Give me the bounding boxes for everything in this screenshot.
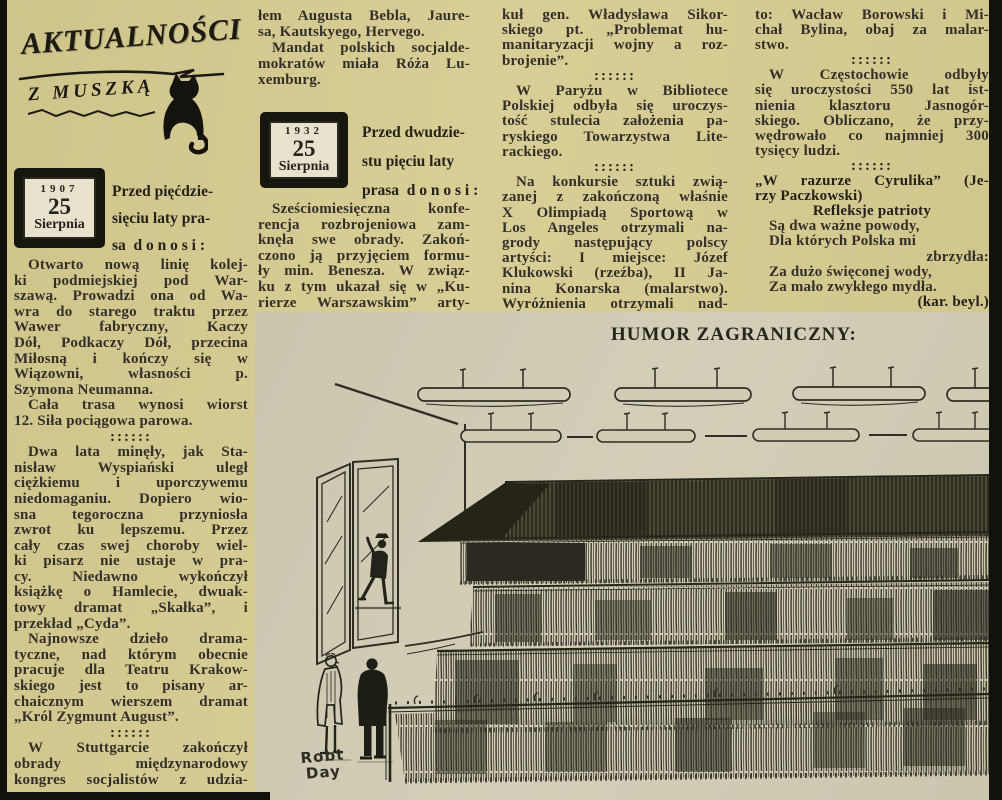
- text-line: mokratów miała Róża Lu-: [258, 56, 470, 72]
- text-line: manitaryzacji wojny a roz-: [502, 38, 728, 53]
- text-line: Miłosną i kończy się w: [14, 352, 248, 368]
- text-line: Otwarto nową linię kolej-: [14, 258, 248, 274]
- ceiling-lamp: [615, 368, 751, 406]
- signature-line: Day: [305, 762, 341, 783]
- man-dark-coat: [358, 658, 388, 758]
- text-line: Sześciomiesięczna konfe-: [258, 202, 470, 218]
- masthead-title: AKTUALNOŚCI: [20, 13, 243, 62]
- text-line: rierze Warszawskim” arty-: [258, 296, 470, 312]
- text-line: knęła swe obrady. Zakoń-: [258, 233, 470, 249]
- text-line: rzy Paczkowski): [755, 189, 989, 204]
- text-line: zwrot ku lepszemu. Przez: [14, 523, 248, 539]
- text-line: niedomaganiu. Dopiero wio-: [14, 492, 248, 508]
- ceiling-lamp: [947, 368, 989, 401]
- text-line: ryskiego Towarzystwa Lite-: [502, 130, 728, 145]
- text-line: Refleksje patrioty: [755, 204, 989, 219]
- cat-icon: [156, 70, 208, 162]
- text-line: chał Bylina, obaj za malar-: [755, 23, 989, 38]
- text-line: pracuje dla Teatru Krakow-: [14, 663, 248, 679]
- intro-1932: Przed dwudzie-stu pięciu latyprasa d o n…: [362, 118, 474, 205]
- text-line: przekład „Cyda”.: [14, 617, 248, 633]
- text-line: ły min. Benesza. W związ-: [258, 264, 470, 280]
- text-line: xemburg.: [258, 72, 470, 88]
- ceiling-lamp: [418, 369, 570, 406]
- text-line: Mandat polskich socjalde-: [258, 40, 470, 56]
- section-separator: ::::::: [755, 159, 989, 174]
- text-line: Wiązowni, własności p.: [14, 367, 248, 383]
- artist-signature: Robt Day: [300, 745, 347, 783]
- cartoon-area: HUMOR ZAGRANICZNY:: [255, 312, 989, 800]
- text-line: Najnowsze dzieło drama-: [14, 632, 248, 648]
- text-line: „W razurze Cyrulika” (Je-: [755, 174, 989, 189]
- text-line: Są dwa ważne powody,: [755, 219, 989, 234]
- intro-1907: Przed pięćdzie-sięciu laty pra-sa d o n …: [112, 178, 250, 259]
- text-line: Przed dwudzie-: [362, 118, 474, 147]
- text-line: Wawer fabryczny, Kaczy: [14, 320, 248, 336]
- text-line: to: Wacław Borowski i Mi-: [755, 8, 989, 23]
- text-line: „Król Zygmunt August”.: [14, 710, 248, 726]
- text-line: nienia klasztoru Jasnogór-: [755, 99, 989, 114]
- text-line: Szymona Neumanna.: [14, 383, 248, 399]
- badge-month: Sierpnia: [34, 217, 85, 233]
- ceiling-lamp: [597, 413, 695, 442]
- text-line: się uroczystości 550 lat ist-: [755, 83, 989, 98]
- text-line: Los Angeles otrzymali na-: [502, 221, 728, 236]
- text-line: stwo.: [755, 38, 989, 53]
- text-line: szawą. Prowadzi ona od Wa-: [14, 289, 248, 305]
- masthead: AKTUALNOŚCI Z MUSZKĄ: [14, 16, 252, 166]
- coat-rack-tier: [469, 580, 989, 646]
- text-line: ki podmiejskiej pod War-: [14, 274, 248, 290]
- text-line: W Częstochowie odbyły: [755, 68, 989, 83]
- date-badge-inner: 1907 25 Sierpnia: [23, 177, 96, 239]
- text-line: sa d o n o s i :: [112, 232, 250, 259]
- column-2-top: łem Augusta Bebla, Jaure-sa, Kautskyego,…: [258, 8, 470, 88]
- text-line: zanej z zakończoną właśnie: [502, 190, 728, 205]
- section-separator: ::::::: [14, 726, 248, 742]
- section-separator: ::::::: [755, 53, 989, 68]
- scan-edge-right: [989, 0, 1002, 800]
- text-line: skiego. Obliczano, że przy-: [755, 114, 989, 129]
- text-line: W Paryżu w Bibliotece: [502, 84, 728, 99]
- text-line: rackiego.: [502, 145, 728, 160]
- text-line: rencja rozbrojeniowa zam-: [258, 218, 470, 234]
- masthead-zigzag: [26, 108, 158, 118]
- text-line: towy dramat „Skałka”, i: [14, 601, 248, 617]
- coat-racks: [386, 475, 989, 782]
- ceiling-lamp: [753, 412, 859, 441]
- man-pinstripe: [317, 654, 343, 753]
- text-line: Dla których Polska mi: [755, 234, 989, 249]
- text-line: Polskiej odbyła się uroczys-: [502, 99, 728, 114]
- text-line: nisław Wyspiański uległ: [14, 461, 248, 477]
- text-line: tość stulecia założenia pa-: [502, 114, 728, 129]
- talking-men: [317, 654, 393, 762]
- ceiling-lamp: [793, 367, 925, 405]
- text-line: tysięcy ludzi.: [755, 144, 989, 159]
- text-line: nina Konarska (malarstwo).: [502, 282, 728, 297]
- text-line: chaicznym wierszem dramat: [14, 695, 248, 711]
- scan-edge-left: [0, 0, 7, 800]
- text-line: kuł gen. Władysława Sikor-: [502, 8, 728, 23]
- text-line: Za mało zwykłego mydła.: [755, 280, 989, 295]
- text-line: (kar. beyl.): [755, 295, 989, 310]
- text-line: Dół, Podkaczy Dół, przecina: [14, 336, 248, 352]
- ceiling-lamp: [461, 413, 561, 442]
- text-line: czono ją przyjęciem formu-: [258, 249, 470, 265]
- date-badge-1907: 1907 25 Sierpnia: [14, 168, 105, 248]
- column-1: Otwarto nową linię kolej-ki podmiejskiej…: [14, 258, 248, 788]
- ceiling-lamps: [418, 367, 989, 442]
- text-line: obrady międzynarodowy: [14, 757, 248, 773]
- column-4: to: Wacław Borowski i Mi-chał Bylina, ob…: [755, 8, 989, 310]
- text-line: wra do starego traktu przez: [14, 305, 248, 321]
- entrance-door: [317, 459, 483, 664]
- text-line: sna tegoroczna przyniosła: [14, 508, 248, 524]
- entering-man: [355, 534, 401, 609]
- newspaper-page: AKTUALNOŚCI Z MUSZKĄ 1907 25 Sierpnia Pr…: [0, 0, 1002, 800]
- text-line: artyści: I miejsce: Józef: [502, 251, 728, 266]
- text-line: Klukowski (rzeźba), II Ja-: [502, 266, 728, 281]
- text-line: ku z tym ukazał się w „Ku-: [258, 280, 470, 296]
- date-badge-inner: 1932 25 Sierpnia: [269, 121, 339, 179]
- column-3: kuł gen. Władysława Sikor-skiego pt. „Pr…: [502, 8, 728, 312]
- text-line: Za dużo święconej wody,: [755, 265, 989, 280]
- cartoon-illustration: Robt Day: [255, 312, 989, 800]
- text-line: brojenie”.: [502, 54, 728, 69]
- ceiling-lamp: [913, 412, 989, 441]
- text-line: 12. Siła pociągowa parowa.: [14, 414, 248, 430]
- text-line: X Olimpiadą Sportową w: [502, 206, 728, 221]
- text-line: cały czas swej choroby wiel-: [14, 539, 248, 555]
- text-line: sa, Kautskyego, Hervego.: [258, 24, 470, 40]
- text-line: W Stuttgarcie zakończył: [14, 741, 248, 757]
- text-line: łem Augusta Bebla, Jaure-: [258, 8, 470, 24]
- text-line: zbrzydła:: [755, 250, 989, 265]
- section-separator: ::::::: [502, 69, 728, 84]
- text-line: książkę o Hamlecie, dwuak-: [14, 585, 248, 601]
- badge-day: 25: [48, 196, 71, 217]
- text-line: Na konkursie sztuki zwią-: [502, 175, 728, 190]
- text-line: Wyróżnienia otrzymali nad-: [502, 297, 728, 312]
- section-separator: ::::::: [14, 430, 248, 446]
- column-2-paragraph: Sześciomiesięczna konfe-rencja rozbrojen…: [258, 202, 470, 311]
- text-line: cy. Niedawno wykończył: [14, 570, 248, 586]
- text-line: skiego pt. „Problemat hu-: [502, 23, 728, 38]
- badge-month: Sierpnia: [279, 159, 330, 175]
- coat-rack-tier: [418, 475, 989, 542]
- text-line: ciężkiemu i uporczywemu: [14, 476, 248, 492]
- coat-rack-tier: [460, 532, 989, 584]
- text-line: stu pięciu laty: [362, 147, 474, 176]
- text-line: grody następujący polscy: [502, 236, 728, 251]
- section-separator: ::::::: [502, 160, 728, 175]
- date-badge-1932: 1932 25 Sierpnia: [260, 112, 348, 188]
- scan-edge-bottom: [0, 792, 270, 800]
- text-line: Dwa lata minęły, jak Sta-: [14, 445, 248, 461]
- text-line: tyczne, nad którym obecnie: [14, 648, 248, 664]
- text-line: Cała trasa wynosi wiorst: [14, 398, 248, 414]
- text-line: skiego jest to pisany ar-: [14, 679, 248, 695]
- text-line: sięciu laty pra-: [112, 205, 250, 232]
- text-line: ki pisarz nie ustaje w pra-: [14, 554, 248, 570]
- text-line: kongres socjalistów z udzia-: [14, 773, 248, 789]
- text-line: Przed pięćdzie-: [112, 178, 250, 205]
- text-line: wędrowało co najmniej 300: [755, 129, 989, 144]
- badge-day: 25: [293, 138, 316, 159]
